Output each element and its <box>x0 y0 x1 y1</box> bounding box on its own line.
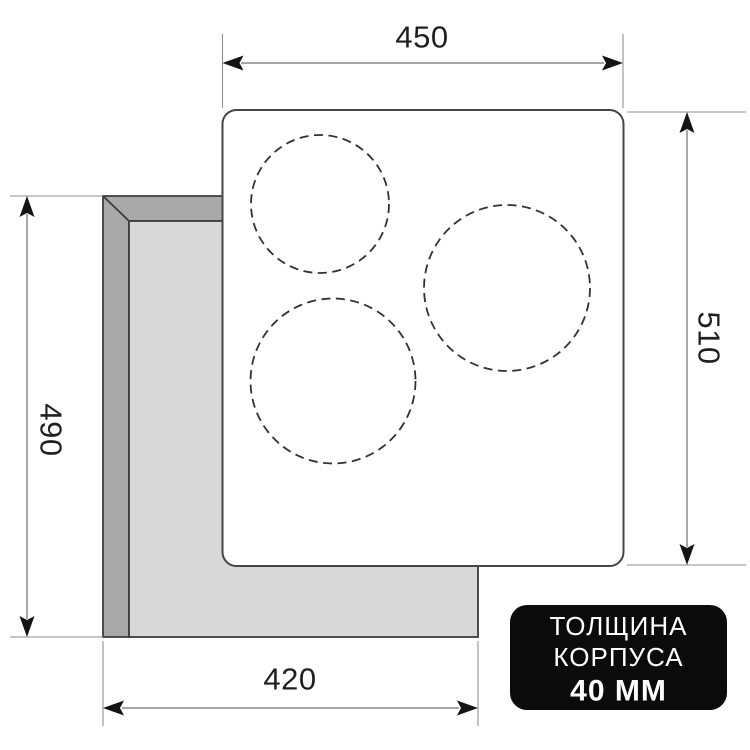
installation-diagram: 450 510 490 420 <box>0 0 750 750</box>
dimension-label-right: 510 <box>692 311 727 364</box>
badge-text-line1: ТОЛЩИНА <box>550 611 688 641</box>
thickness-badge: ТОЛЩИНА КОРПУСА 40 ММ <box>510 605 727 710</box>
arrowhead-left <box>103 701 124 716</box>
cooktop-panel <box>223 110 624 566</box>
arrowhead-left <box>223 56 244 71</box>
dimension-bottom-width: 420 <box>103 641 478 726</box>
badge-text-line2: КОРПУСА <box>553 642 683 672</box>
arrowhead-down <box>20 616 35 637</box>
arrowhead-down <box>680 544 695 565</box>
dimension-top-width: 450 <box>223 20 624 109</box>
panel-surface <box>223 110 624 566</box>
diagram-stage: 450 510 490 420 <box>0 0 750 750</box>
badge-text-line3: 40 ММ <box>570 675 667 708</box>
arrowhead-right <box>602 56 623 71</box>
arrowhead-right <box>457 701 478 716</box>
dimension-label-bottom: 420 <box>263 662 316 697</box>
dimension-label-left: 490 <box>34 403 69 456</box>
dimension-right-height: 510 <box>627 112 746 565</box>
dimension-left-height: 490 <box>10 196 103 637</box>
arrowhead-up <box>20 196 35 217</box>
arrowhead-up <box>680 112 695 133</box>
dimension-label-top: 450 <box>395 20 448 55</box>
